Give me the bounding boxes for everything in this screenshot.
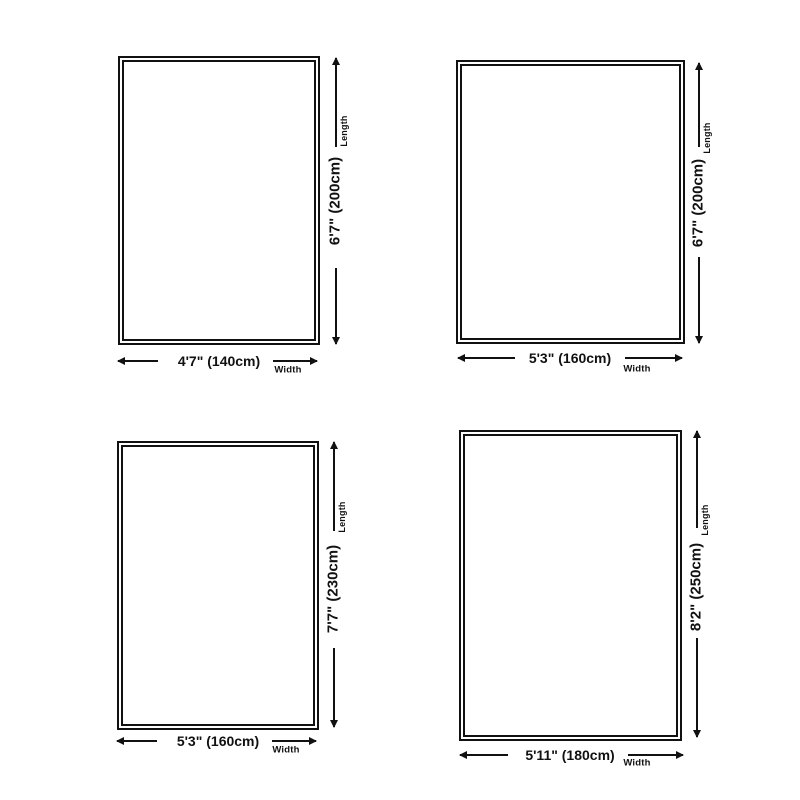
length-axis-label: Length — [700, 504, 710, 535]
rug-outline — [459, 430, 682, 741]
size-panel-180x250: Length 8'2" (250cm) 5'11" (180cm) Width — [0, 0, 800, 800]
width-axis-label: Width — [623, 758, 650, 769]
width-arrow-right-icon — [628, 754, 683, 756]
length-value: 8'2" (250cm) — [688, 543, 705, 631]
width-arrow-left-icon — [460, 754, 508, 756]
width-value: 5'11" (180cm) — [525, 747, 614, 763]
rug-inner-outline — [463, 434, 678, 737]
size-chart: Length 6'7" (200cm) 4'7" (140cm) Width L… — [0, 0, 800, 800]
length-arrow-up-icon — [696, 431, 698, 528]
length-arrow-down-icon — [696, 638, 698, 737]
